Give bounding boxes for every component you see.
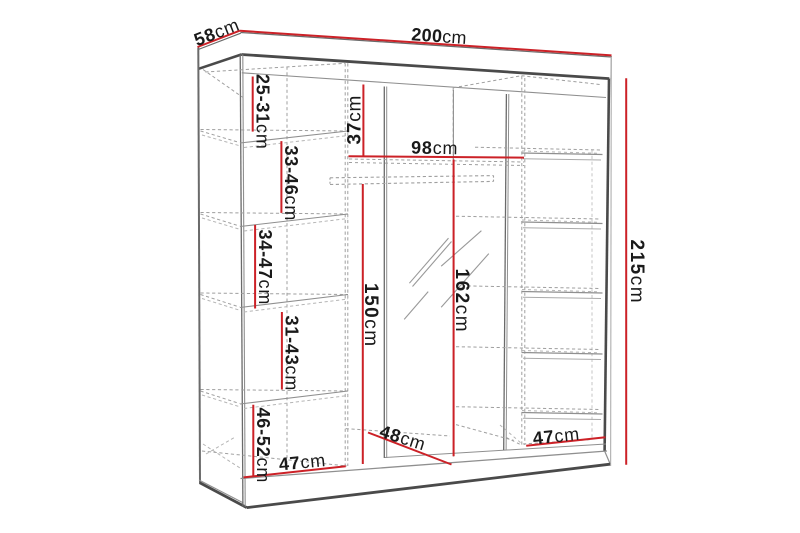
svg-text:34-47cm: 34-47cm	[255, 230, 275, 306]
svg-text:33-46cm: 33-46cm	[281, 146, 301, 222]
svg-text:46-52cm: 46-52cm	[253, 408, 273, 484]
svg-text:98cm: 98cm	[411, 138, 459, 159]
svg-text:31-43cm: 31-43cm	[282, 316, 302, 392]
svg-text:200cm: 200cm	[411, 24, 468, 48]
svg-text:37cm: 37cm	[345, 95, 366, 145]
svg-text:162cm: 162cm	[451, 269, 472, 334]
svg-text:215cm: 215cm	[626, 240, 647, 305]
svg-text:25-31cm: 25-31cm	[253, 74, 273, 150]
svg-text:150cm: 150cm	[360, 283, 381, 348]
